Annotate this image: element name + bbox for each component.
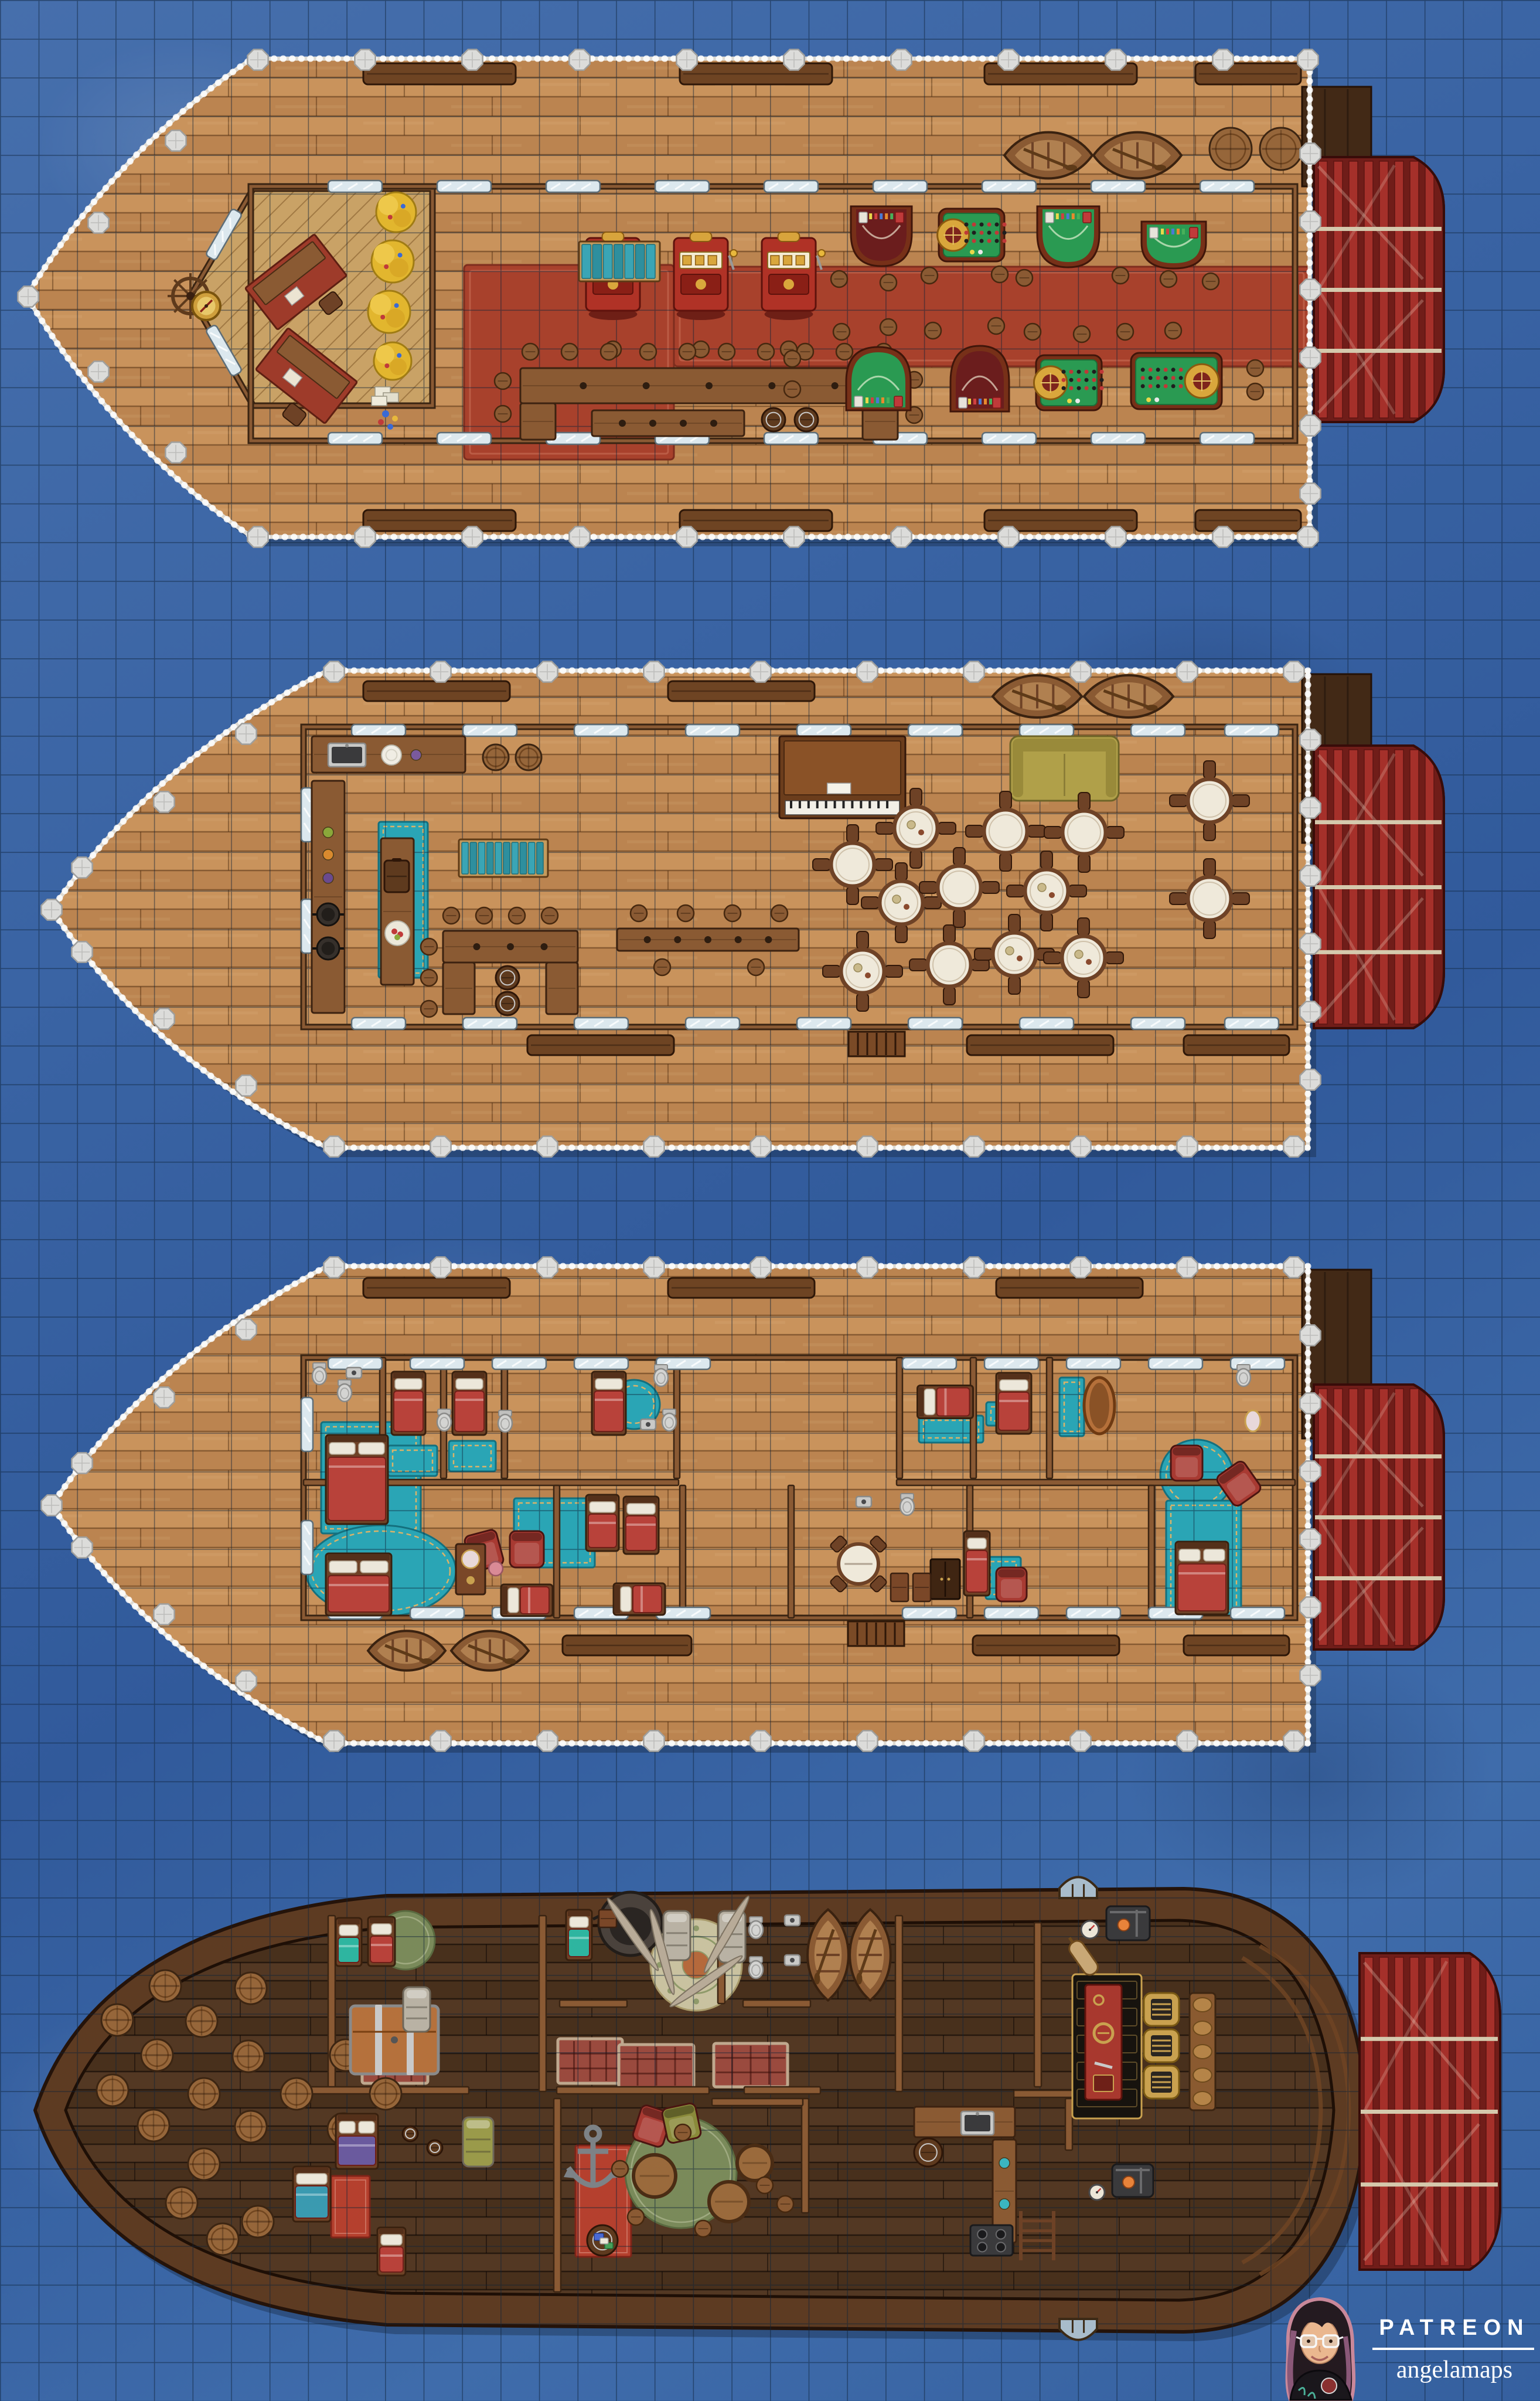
railing-post xyxy=(857,1257,877,1277)
railing-post xyxy=(1300,865,1320,886)
railing-post xyxy=(165,442,186,462)
railing-post xyxy=(1300,1461,1320,1481)
railing-post xyxy=(1177,661,1197,682)
counter xyxy=(520,403,556,440)
bedroll xyxy=(663,1911,690,1960)
roulette-table xyxy=(938,209,1007,261)
window xyxy=(437,181,491,192)
barrel xyxy=(149,1970,181,2002)
bench xyxy=(363,681,510,701)
steam-engine xyxy=(1106,1906,1150,1940)
window xyxy=(1131,1018,1185,1029)
barrel xyxy=(242,2206,274,2237)
window xyxy=(1020,725,1074,736)
railing-post xyxy=(963,1136,984,1157)
vanity xyxy=(456,1544,485,1594)
railing-post xyxy=(154,1387,174,1407)
window xyxy=(492,1358,546,1369)
railing-post xyxy=(1283,1136,1304,1157)
railing-post xyxy=(750,1730,771,1751)
sink xyxy=(785,1955,800,1965)
stool xyxy=(724,905,741,921)
railing-post xyxy=(891,49,911,70)
luggage xyxy=(384,858,409,892)
stool xyxy=(421,938,437,955)
bench xyxy=(1184,1635,1289,1655)
card-table xyxy=(950,346,1009,411)
railing-post xyxy=(1070,1730,1091,1751)
bench xyxy=(527,1035,674,1055)
paddle-wheel xyxy=(1314,157,1444,422)
keg xyxy=(914,2138,942,2167)
table xyxy=(830,1535,888,1593)
railing-post xyxy=(1300,1393,1320,1413)
wall xyxy=(1014,2090,1078,2097)
railing-post xyxy=(355,49,375,70)
bench xyxy=(1184,1035,1289,1055)
toilet xyxy=(312,1363,326,1385)
bench xyxy=(973,1635,1119,1655)
railing-post xyxy=(1300,729,1320,750)
pressure-gauge xyxy=(1081,1921,1099,1939)
barrel xyxy=(281,2078,312,2110)
double-bed xyxy=(326,1553,391,1616)
slot-machine xyxy=(674,232,737,320)
railing-post xyxy=(247,49,268,70)
railing-post xyxy=(750,661,771,682)
wall xyxy=(680,1485,686,1618)
stool xyxy=(880,274,897,291)
nightstand xyxy=(913,1573,931,1601)
counter xyxy=(617,929,799,951)
double-bed xyxy=(1176,1542,1228,1614)
gold-pile xyxy=(368,291,410,333)
counter xyxy=(546,963,578,1014)
bed xyxy=(964,1531,990,1596)
railing-post xyxy=(430,1257,451,1277)
counter xyxy=(520,368,898,403)
window xyxy=(984,1358,1038,1369)
card-table xyxy=(1037,206,1099,267)
railing-post xyxy=(643,1257,664,1277)
railing-post xyxy=(857,1730,877,1751)
window xyxy=(1131,725,1185,736)
stool xyxy=(1165,322,1181,339)
counter xyxy=(592,410,744,436)
railing-post xyxy=(71,1453,92,1473)
wall xyxy=(554,1485,560,1618)
bed xyxy=(336,1918,362,1966)
window xyxy=(1091,433,1145,444)
window xyxy=(908,1018,962,1029)
bench xyxy=(363,510,516,531)
toilet xyxy=(900,1494,914,1515)
railing-post xyxy=(537,1257,557,1277)
keg xyxy=(403,2126,418,2141)
window xyxy=(655,181,709,192)
railing-post xyxy=(1300,279,1320,300)
window xyxy=(686,1018,740,1029)
stool xyxy=(677,905,694,921)
wall xyxy=(1065,2099,1072,2150)
gold-pile xyxy=(372,240,414,283)
railing-post xyxy=(783,526,804,547)
wall xyxy=(788,1485,794,1618)
stool xyxy=(921,267,938,284)
stool xyxy=(421,970,437,986)
wall xyxy=(743,2000,810,2007)
mirror xyxy=(1245,1410,1260,1431)
stool xyxy=(925,322,941,339)
stool xyxy=(1160,271,1177,287)
sink xyxy=(346,1368,362,1378)
wall xyxy=(1047,1358,1052,1478)
steam-engine xyxy=(1112,2164,1153,2197)
barrel xyxy=(233,2040,264,2072)
bed xyxy=(614,1583,665,1615)
roulette-table xyxy=(1131,353,1222,409)
railing-post xyxy=(676,526,697,547)
railing-post xyxy=(1300,415,1320,436)
window xyxy=(873,181,927,192)
window xyxy=(764,181,818,192)
nightstand xyxy=(891,1573,908,1601)
railing-post xyxy=(41,899,62,920)
bench xyxy=(1195,510,1301,531)
window xyxy=(328,181,382,192)
railing-post xyxy=(236,1075,256,1096)
roulette-table xyxy=(1034,355,1103,410)
barrel xyxy=(483,744,509,770)
barrel xyxy=(370,2078,401,2110)
window xyxy=(764,433,818,444)
stool xyxy=(443,907,459,924)
bench xyxy=(996,1278,1143,1298)
railing-post xyxy=(323,1730,344,1751)
barrel xyxy=(188,2078,220,2110)
armchair xyxy=(996,1567,1027,1601)
railing-post xyxy=(1177,1136,1197,1157)
bed xyxy=(996,1373,1031,1434)
railing-post xyxy=(857,661,877,682)
platter xyxy=(385,921,410,946)
window xyxy=(1225,725,1279,736)
window xyxy=(908,725,962,736)
window xyxy=(797,1018,851,1029)
barrel xyxy=(1209,128,1252,170)
barrel xyxy=(1260,128,1302,170)
barrel xyxy=(235,1973,267,2004)
stool xyxy=(561,344,578,360)
stool xyxy=(833,324,850,340)
counter xyxy=(443,963,475,1014)
window xyxy=(1200,181,1254,192)
railing-post xyxy=(1300,1529,1320,1549)
toilet xyxy=(1236,1365,1251,1386)
railing-post xyxy=(643,1730,664,1751)
railing-post xyxy=(1300,797,1320,818)
stairs xyxy=(849,1032,905,1056)
work-table xyxy=(1085,1985,1122,2100)
railing-post xyxy=(1070,1136,1091,1157)
keg xyxy=(496,966,519,989)
wall xyxy=(744,2087,820,2094)
stool xyxy=(495,406,511,422)
railing-post xyxy=(323,661,344,682)
stool xyxy=(1112,267,1129,284)
window xyxy=(1091,181,1145,192)
boiler xyxy=(1144,1993,1179,2026)
wall xyxy=(1034,1923,1041,2087)
railing-post xyxy=(430,1136,451,1157)
stool xyxy=(601,344,617,360)
stool xyxy=(495,373,511,389)
railing-post xyxy=(41,1495,62,1515)
railing-post xyxy=(165,130,186,151)
window xyxy=(1067,1358,1120,1369)
wall xyxy=(895,1916,902,2091)
bench xyxy=(967,1035,1113,1055)
stool xyxy=(522,344,539,360)
wall xyxy=(897,1358,902,1478)
railing-post xyxy=(643,661,664,682)
food-item xyxy=(323,827,333,838)
paddle-wheel xyxy=(1314,746,1444,1028)
window xyxy=(328,433,382,444)
stool xyxy=(784,381,800,397)
stool xyxy=(771,905,788,921)
bathtub xyxy=(1084,1378,1115,1434)
railing-post xyxy=(1283,661,1304,682)
window xyxy=(301,1521,313,1574)
bench xyxy=(680,63,832,84)
bench xyxy=(563,1635,691,1655)
window xyxy=(902,1358,956,1369)
railing-post xyxy=(998,526,1018,547)
counter xyxy=(312,781,345,1013)
barrel xyxy=(138,2110,169,2141)
sofa xyxy=(1010,736,1119,801)
window xyxy=(984,1607,1038,1619)
railing-post xyxy=(1300,143,1320,164)
window xyxy=(301,1397,313,1451)
barrel xyxy=(207,2223,239,2255)
railing-post xyxy=(236,1671,256,1691)
window xyxy=(1200,433,1254,444)
stool xyxy=(1024,324,1041,340)
railing-post xyxy=(891,526,911,547)
railing-post xyxy=(1300,1665,1320,1685)
bed xyxy=(377,2227,406,2276)
card-table xyxy=(846,347,911,410)
bench xyxy=(363,1278,510,1298)
railing-post xyxy=(537,661,557,682)
stool xyxy=(836,344,853,360)
battle-map: PATREON angelamaps xyxy=(0,0,1540,2401)
railing-post xyxy=(1177,1257,1197,1277)
toilet xyxy=(749,1957,763,1978)
paddle-wheel xyxy=(1314,1385,1444,1650)
railing-post xyxy=(643,1136,664,1157)
railing-post xyxy=(1300,483,1320,504)
watermark-divider xyxy=(1372,2348,1534,2350)
card-table xyxy=(1142,222,1206,268)
stool xyxy=(757,2177,773,2193)
bed xyxy=(452,1372,486,1435)
wall xyxy=(557,2087,709,2094)
toilet xyxy=(749,1917,763,1939)
slot-machine xyxy=(762,232,825,320)
stool xyxy=(674,2124,691,2141)
window xyxy=(546,181,600,192)
railing-post xyxy=(1300,1001,1320,1022)
artist-avatar xyxy=(1270,2295,1369,2401)
sink xyxy=(856,1497,871,1507)
railing-post xyxy=(71,857,92,878)
window xyxy=(437,433,491,444)
paddle-wheel xyxy=(1360,1953,1500,2270)
food-item xyxy=(323,849,333,860)
patreon-label: PATREON xyxy=(1369,2315,1540,2341)
window xyxy=(797,725,851,736)
railing-post xyxy=(323,1257,344,1277)
barrel xyxy=(516,744,541,770)
window xyxy=(1225,1018,1279,1029)
window xyxy=(574,725,628,736)
railing-post xyxy=(569,49,590,70)
railing-post xyxy=(1283,1730,1304,1751)
barrel xyxy=(97,2074,128,2106)
stool xyxy=(988,318,1004,334)
pressure-gauge xyxy=(1089,2185,1105,2200)
railing-post xyxy=(750,1257,771,1277)
stool xyxy=(758,344,774,360)
keg xyxy=(427,2140,442,2155)
window xyxy=(574,1358,628,1369)
stool xyxy=(509,907,525,924)
window xyxy=(982,181,1036,192)
bed xyxy=(586,1495,619,1551)
bookshelf xyxy=(459,839,548,877)
bookshelf xyxy=(579,242,660,281)
wall xyxy=(554,2099,561,2292)
railing-post xyxy=(355,526,375,547)
railing-post xyxy=(323,1136,344,1157)
table xyxy=(737,2145,772,2181)
sink xyxy=(785,1915,800,1926)
food-item xyxy=(411,750,421,760)
stool xyxy=(628,2209,644,2225)
stool xyxy=(640,344,656,360)
counter xyxy=(443,931,578,963)
railing-post xyxy=(1297,49,1318,70)
window xyxy=(1149,1358,1202,1369)
table xyxy=(709,2182,749,2222)
boiler xyxy=(1144,2029,1179,2062)
boiler xyxy=(1144,2066,1179,2099)
bed xyxy=(592,1372,626,1435)
stool xyxy=(541,907,558,924)
bench xyxy=(680,510,832,531)
toilet xyxy=(662,1409,676,1431)
railing-post xyxy=(71,1537,92,1557)
railing-post xyxy=(1177,1730,1197,1751)
barrel xyxy=(235,2111,267,2142)
railing-post xyxy=(71,941,92,962)
stool xyxy=(1117,324,1133,340)
barrel xyxy=(186,2005,217,2037)
railing-post xyxy=(88,361,108,382)
bed xyxy=(368,1917,395,1966)
railing-post xyxy=(998,49,1018,70)
stool xyxy=(1074,326,1090,342)
stool xyxy=(421,1001,437,1017)
window xyxy=(463,1018,517,1029)
stove xyxy=(970,2225,1013,2256)
stairs xyxy=(848,1621,904,1646)
railing-post xyxy=(1300,1597,1320,1617)
wall xyxy=(539,1916,546,2091)
wardrobe xyxy=(931,1559,960,1599)
window xyxy=(410,1607,464,1619)
piano xyxy=(779,736,905,818)
keg xyxy=(795,408,818,431)
stool xyxy=(695,2220,711,2237)
railing-post xyxy=(569,526,590,547)
railing-post xyxy=(1070,661,1091,682)
wall xyxy=(1149,1485,1154,1618)
railing-post xyxy=(154,1008,174,1029)
railing-post xyxy=(857,1136,877,1157)
railing-post xyxy=(236,1319,256,1339)
railing-post xyxy=(1300,933,1320,954)
watermark: PATREON angelamaps xyxy=(1270,2295,1540,2401)
barrel xyxy=(188,2148,220,2180)
railing-post xyxy=(462,49,482,70)
barrel xyxy=(141,2039,173,2071)
railing-post xyxy=(462,526,482,547)
stool xyxy=(631,905,647,921)
bench xyxy=(1195,63,1301,84)
railing-post xyxy=(750,1136,771,1157)
railing-post xyxy=(430,661,451,682)
stool xyxy=(1016,270,1033,286)
food-item xyxy=(999,2158,1010,2168)
window xyxy=(352,1018,406,1029)
railing-post xyxy=(247,526,268,547)
stool xyxy=(612,2161,628,2177)
railing-post xyxy=(783,49,804,70)
food-item xyxy=(999,2199,1010,2209)
railing-post xyxy=(1283,1257,1304,1277)
railing-post xyxy=(18,286,38,307)
keg xyxy=(496,992,519,1015)
stool xyxy=(777,2196,793,2212)
railing-post xyxy=(963,1257,984,1277)
vanity-stool xyxy=(489,1562,503,1576)
railing-post xyxy=(1212,526,1233,547)
bed xyxy=(391,1372,425,1435)
stool xyxy=(1247,360,1263,376)
toilet xyxy=(654,1365,668,1386)
bedroll xyxy=(403,1987,430,2032)
bed xyxy=(293,2167,331,2222)
stool xyxy=(880,319,897,335)
window xyxy=(1067,1607,1120,1619)
wall xyxy=(712,2099,803,2106)
wall xyxy=(802,2099,809,2213)
stool xyxy=(679,344,696,360)
